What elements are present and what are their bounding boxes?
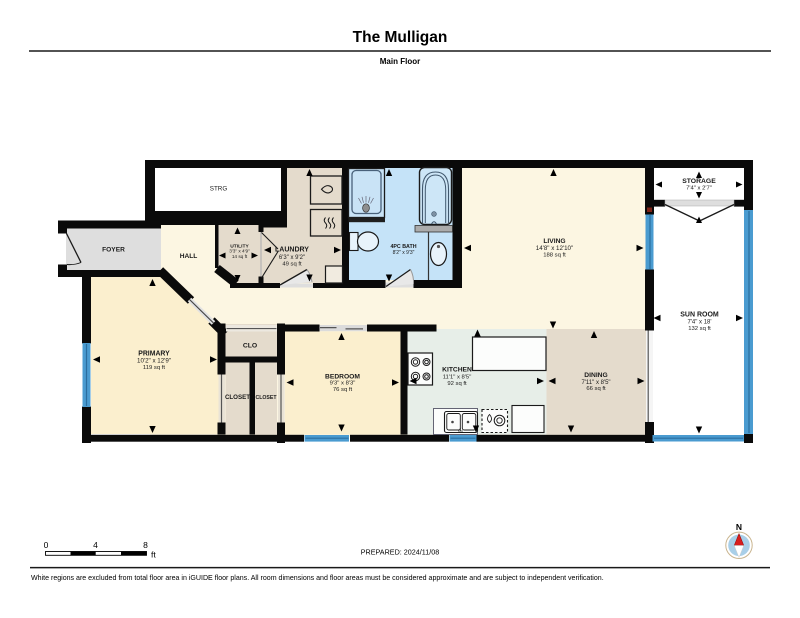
svg-text:132 sq ft: 132 sq ft xyxy=(688,326,711,332)
svg-text:4PC BATH: 4PC BATH xyxy=(390,244,416,250)
svg-text:8'2" x 9'3": 8'2" x 9'3" xyxy=(393,250,415,256)
svg-text:ft: ft xyxy=(151,550,156,560)
svg-text:66 sq ft: 66 sq ft xyxy=(586,386,606,392)
svg-text:92 sq ft: 92 sq ft xyxy=(447,381,467,387)
svg-text:49 sq ft: 49 sq ft xyxy=(282,261,302,267)
svg-text:CLOSET: CLOSET xyxy=(255,395,277,401)
svg-text:9'3" x 8'3": 9'3" x 8'3" xyxy=(330,381,356,387)
svg-text:White regions are excluded fro: White regions are excluded from total fl… xyxy=(31,575,604,582)
svg-text:8: 8 xyxy=(143,540,148,550)
svg-text:7'11" x 8'5": 7'11" x 8'5" xyxy=(581,380,610,386)
svg-text:CLO: CLO xyxy=(243,343,257,350)
svg-text:PREPARED: 2024/11/08: PREPARED: 2024/11/08 xyxy=(361,547,439,556)
svg-text:4: 4 xyxy=(93,540,98,550)
svg-text:3'3" x 4'9": 3'3" x 4'9" xyxy=(229,249,250,254)
svg-text:The Mulligan: The Mulligan xyxy=(353,29,448,46)
svg-text:10'2" x 12'9": 10'2" x 12'9" xyxy=(137,357,171,364)
svg-text:7'4" x 2'7": 7'4" x 2'7" xyxy=(686,186,712,192)
svg-text:PRIMARY: PRIMARY xyxy=(138,350,170,357)
svg-text:N: N xyxy=(736,522,742,532)
svg-text:14'8" x 12'10": 14'8" x 12'10" xyxy=(536,245,573,252)
svg-text:LAUNDRY: LAUNDRY xyxy=(275,247,309,254)
svg-text:6'3" x 9'2": 6'3" x 9'2" xyxy=(279,255,305,261)
svg-text:CLOSET: CLOSET xyxy=(225,394,250,401)
svg-text:KITCHEN: KITCHEN xyxy=(442,367,472,374)
svg-text:0: 0 xyxy=(44,540,49,550)
svg-text:76 sq ft: 76 sq ft xyxy=(333,387,353,393)
svg-text:14 sq ft: 14 sq ft xyxy=(232,254,248,259)
svg-text:DINING: DINING xyxy=(584,372,607,379)
svg-text:188 sq ft: 188 sq ft xyxy=(543,253,566,259)
svg-text:7'4" x 18': 7'4" x 18' xyxy=(687,319,711,325)
svg-text:119 sq ft: 119 sq ft xyxy=(143,365,166,371)
svg-text:Main Floor: Main Floor xyxy=(380,57,420,66)
svg-text:LIVING: LIVING xyxy=(543,238,565,245)
svg-text:11'1" x 8'5": 11'1" x 8'5" xyxy=(443,374,472,380)
svg-text:STORAGE: STORAGE xyxy=(682,178,716,185)
svg-text:BEDROOM: BEDROOM xyxy=(325,373,360,380)
svg-text:STRG: STRG xyxy=(210,186,228,193)
svg-text:SUN ROOM: SUN ROOM xyxy=(680,312,719,319)
svg-text:FOYER: FOYER xyxy=(102,246,125,253)
svg-text:HALL: HALL xyxy=(180,253,198,260)
